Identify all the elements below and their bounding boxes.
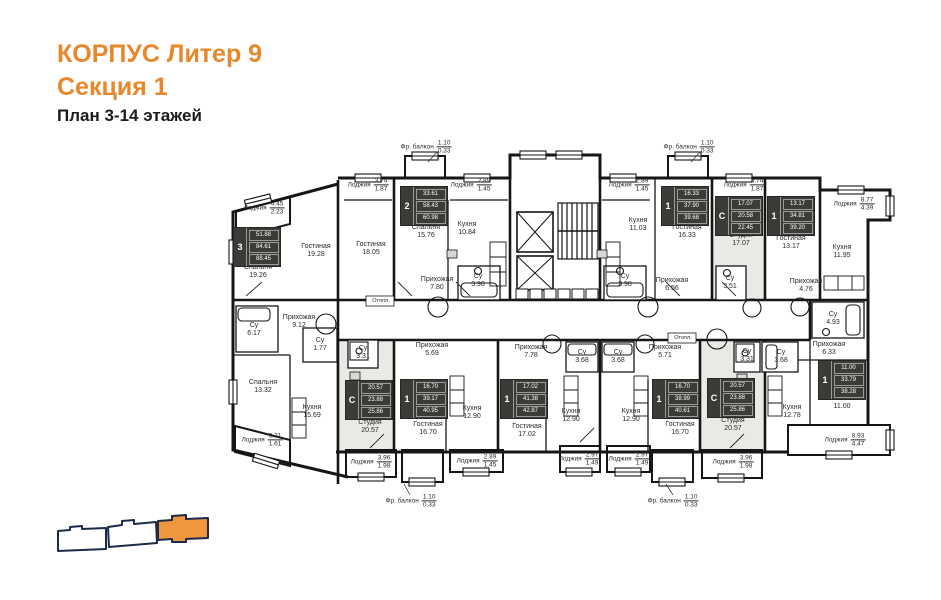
apartment-rooms-count: 1 bbox=[662, 187, 675, 225]
apartment-living-area: 16.33 bbox=[677, 189, 707, 200]
apartment-badge[interactable]: С 17.07 20.58 22.45 bbox=[715, 196, 763, 236]
apartment-area: 84.61 bbox=[249, 242, 279, 253]
apartment-total-area: 88.45 bbox=[249, 254, 279, 265]
apartment-badge[interactable]: 1 16.33 37.90 39.68 bbox=[661, 186, 709, 226]
apartment-badge[interactable]: 3 51.88 84.61 88.45 bbox=[233, 227, 281, 267]
apartment-badge[interactable]: С 20.57 23.88 25.86 bbox=[345, 380, 393, 420]
apartment-living-area: 17.07 bbox=[731, 199, 761, 210]
apartment-total-area: 25.86 bbox=[723, 405, 753, 416]
apartment-badge[interactable]: 1 16.70 39.17 40.95 bbox=[400, 379, 448, 419]
apartment-living-area: 17.02 bbox=[516, 382, 546, 393]
apartment-living-area: 20.57 bbox=[723, 381, 753, 392]
apartment-area: 33.79 bbox=[834, 375, 864, 386]
apartment-area: 23.88 bbox=[361, 395, 391, 406]
apartment-total-area: 40.61 bbox=[668, 406, 698, 417]
apartment-rooms-count: С bbox=[708, 379, 721, 417]
apartment-total-area: 22.45 bbox=[731, 223, 761, 234]
apartment-rooms-count: 1 bbox=[653, 380, 666, 418]
apartment-areas: 16.33 37.90 39.68 bbox=[675, 187, 708, 225]
keyplan-section-left[interactable] bbox=[58, 526, 106, 551]
vent-shafts bbox=[516, 289, 598, 299]
apartment-areas: 11.00 33.79 38.28 bbox=[832, 361, 865, 399]
apartment-rooms-count: 1 bbox=[401, 380, 414, 418]
apartment-living-area: 20.57 bbox=[361, 383, 391, 394]
apartment-total-area: 25.86 bbox=[361, 407, 391, 418]
apartment-areas: 51.88 84.61 88.45 bbox=[247, 228, 280, 266]
apartment-area: 38.99 bbox=[668, 394, 698, 405]
apartment-living-area: 11.00 bbox=[834, 363, 864, 374]
apartment-areas: 13.17 34.81 39.20 bbox=[781, 197, 814, 235]
apartment-rooms-count: С bbox=[716, 197, 729, 235]
apartment-areas: 16.70 39.17 40.95 bbox=[414, 380, 447, 418]
apartment-rooms-count: 1 bbox=[501, 380, 514, 418]
apartment-total-area: 60.98 bbox=[416, 213, 446, 224]
apartment-area: 37.90 bbox=[677, 201, 707, 212]
keyplan bbox=[58, 515, 208, 551]
apartment-total-area: 38.28 bbox=[834, 387, 864, 398]
apartment-areas: 16.70 38.99 40.61 bbox=[666, 380, 699, 418]
apartment-area: 58.43 bbox=[416, 201, 446, 212]
apartment-total-area: 39.68 bbox=[677, 213, 707, 224]
apartment-areas: 17.02 41.38 42.87 bbox=[514, 380, 547, 418]
apartment-rooms-count: 2 bbox=[401, 187, 414, 225]
apartment-total-area: 42.87 bbox=[516, 406, 546, 417]
apartment-areas: 20.57 23.88 25.86 bbox=[359, 381, 392, 419]
apartment-areas: 17.07 20.58 22.45 bbox=[729, 197, 762, 235]
apartment-living-area: 16.70 bbox=[416, 382, 446, 393]
apartment-badge[interactable]: 1 13.17 34.81 39.20 bbox=[767, 196, 815, 236]
apartment-rooms-count: С bbox=[346, 381, 359, 419]
apartment-badge[interactable]: С 20.57 23.88 25.86 bbox=[707, 378, 755, 418]
apartment-badge[interactable]: 1 11.00 33.79 38.28 bbox=[818, 360, 866, 400]
apartment-badge[interactable]: 2 33.61 58.43 60.98 bbox=[400, 186, 448, 226]
apartment-total-area: 40.95 bbox=[416, 406, 446, 417]
apartment-area: 23.88 bbox=[723, 393, 753, 404]
apartment-area: 20.58 bbox=[731, 211, 761, 222]
apartment-total-area: 39.20 bbox=[783, 223, 813, 234]
floorplan-drawing bbox=[0, 0, 941, 600]
apartment-area: 39.17 bbox=[416, 394, 446, 405]
apartment-area: 34.81 bbox=[783, 211, 813, 222]
keyplan-section-right[interactable] bbox=[158, 515, 208, 542]
apartment-areas: 20.57 23.88 25.86 bbox=[721, 379, 754, 417]
apartment-areas: 33.61 58.43 60.98 bbox=[414, 187, 447, 225]
elevator-shafts bbox=[517, 212, 553, 290]
apartment-badge[interactable]: 1 16.70 38.99 40.61 bbox=[652, 379, 700, 419]
apartment-area: 41.38 bbox=[516, 394, 546, 405]
keyplan-section-middle[interactable] bbox=[108, 520, 157, 547]
apartment-living-area: 33.61 bbox=[416, 189, 446, 200]
apartment-living-area: 13.17 bbox=[783, 199, 813, 210]
apartment-rooms-count: 3 bbox=[234, 228, 247, 266]
apartment-rooms-count: 1 bbox=[819, 361, 832, 399]
apartment-living-area: 51.88 bbox=[249, 230, 279, 241]
staircase bbox=[558, 203, 598, 259]
apartment-living-area: 16.70 bbox=[668, 382, 698, 393]
floorplan-page: КОРПУС Литер 9 Секция 1 План 3-14 этажей bbox=[0, 0, 941, 600]
apartment-badge[interactable]: 1 17.02 41.38 42.87 bbox=[500, 379, 548, 419]
apartment-rooms-count: 1 bbox=[768, 197, 781, 235]
